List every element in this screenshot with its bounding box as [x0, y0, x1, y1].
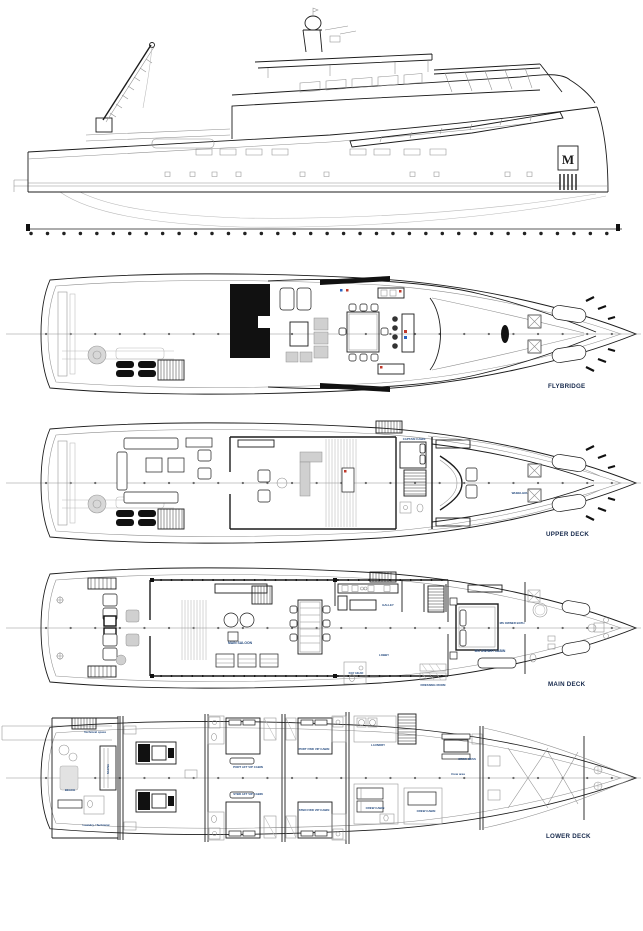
main-deck-plan: MAIN SALOON GALLEY LOBBY DAY HEAD: [6, 568, 641, 688]
room-label-vip-port-aft: PORT AFT VIP CABIN: [233, 765, 263, 769]
day-head: DAY HEAD: [344, 662, 366, 684]
hull-profile: [28, 107, 608, 192]
bar-counter: [392, 314, 414, 352]
room-label-owner-cabin: MS OWNER CABIN: [475, 649, 506, 653]
room-label-laundry-technical: Laundry / Technical: [83, 823, 110, 827]
deck-label-main: MAIN DECK: [548, 681, 586, 688]
flybridge-plan: FLYBRIDGE: [6, 274, 641, 394]
room-label-crew-area: Crew area: [451, 772, 465, 776]
aft-deck: [56, 578, 139, 677]
lobby: LOBBY: [379, 653, 389, 657]
mast-base: [501, 325, 509, 343]
room-label-vip-stbd-fwd: STBD FWD VIP CABIN: [299, 808, 330, 812]
engine-port: [136, 742, 176, 764]
crane-profile: [86, 43, 230, 142]
side-deck-ladder: [376, 421, 402, 433]
room-label-vip-port-fwd: PORT FWD VIP CABIN: [299, 747, 330, 751]
center-stairs: [428, 586, 444, 612]
vip-cabin-port-fwd: PORT FWD VIP CABIN: [286, 716, 346, 754]
vip-cabin-port-aft: PORT AFT VIP CABIN: [208, 716, 276, 769]
deck-label-lower: LOWER DECK: [546, 833, 591, 840]
owner-cabin: MS OWNER CABIN: [450, 585, 516, 668]
profile-view: M: [14, 8, 622, 234]
skylight-panels: [230, 284, 272, 358]
room-label-dressing-room: DRESSING ROOM: [421, 683, 446, 687]
main-saloon: MAIN SALOON: [182, 584, 278, 667]
tender-crane-area: [62, 346, 184, 380]
room-label-vip-stbd-aft: STBD AFT VIP CABIN: [233, 792, 263, 796]
yacht-general-arrangement: M: [0, 0, 643, 931]
room-label-laundry: LAUNDRY: [371, 743, 385, 747]
room-label-crew-cabin-1: CREW CABIN: [366, 806, 385, 810]
crew-area: LAUNDRY CREW MESS Crew area CREW CABIN C…: [354, 714, 482, 824]
ga-drawing-sheet: M: [0, 0, 643, 931]
room-label-beach: BEACH: [65, 788, 75, 792]
galley: GALLEY: [338, 584, 398, 610]
room-label-owner-bath: MS OWNER BATH: [500, 621, 525, 625]
room-label-main-saloon: MAIN SALOON: [228, 641, 253, 645]
dining-area: [290, 600, 330, 654]
vip-cabin-stbd-fwd: STBD FWD VIP CABIN: [286, 802, 346, 840]
hull-glazing: [350, 112, 563, 147]
upper-aft-lounge: [117, 438, 212, 503]
dining-table: [339, 304, 388, 361]
room-label-captain-cabin: CAPTAIN CABIN: [403, 437, 426, 441]
room-label-galley: GALLEY: [382, 603, 394, 607]
radar-mast: [303, 8, 356, 52]
room-label-crew-cabin-2: CREW CABIN: [417, 809, 436, 813]
room-label-lobby: LOBBY: [379, 653, 389, 657]
room-label-technical-space: Technical space: [84, 730, 107, 734]
lower-deck-plan: Technical space BEACH SAUNA Laundry / Te…: [2, 712, 641, 844]
frame-ruler: [26, 224, 622, 234]
sun-loungers: [280, 288, 312, 362]
room-label-sauna: SAUNA: [106, 763, 110, 774]
deck-label-upper: UPPER DECK: [546, 531, 589, 538]
underwater-hull: [14, 180, 606, 227]
upper-deck-plan: CAPTAIN CABIN WHEELHOUSE UPPER DECK: [6, 421, 641, 543]
bow-logo-letter: M: [562, 152, 574, 167]
vip-cabin-stbd-aft: STBD AFT VIP CABIN: [208, 792, 276, 840]
bow-logo-badge: M: [558, 146, 578, 190]
porthole-row: [165, 172, 532, 177]
engine-starboard: [136, 790, 176, 812]
owner-bath: MS OWNER BATH: [500, 590, 555, 662]
deckhouse-profile: [152, 74, 595, 156]
room-label-crew-mess: CREW MESS: [458, 757, 476, 761]
deck-label-flybridge: FLYBRIDGE: [548, 383, 585, 390]
hardtop-profile: [255, 54, 432, 78]
room-label-day-head: DAY HEAD: [349, 671, 364, 675]
